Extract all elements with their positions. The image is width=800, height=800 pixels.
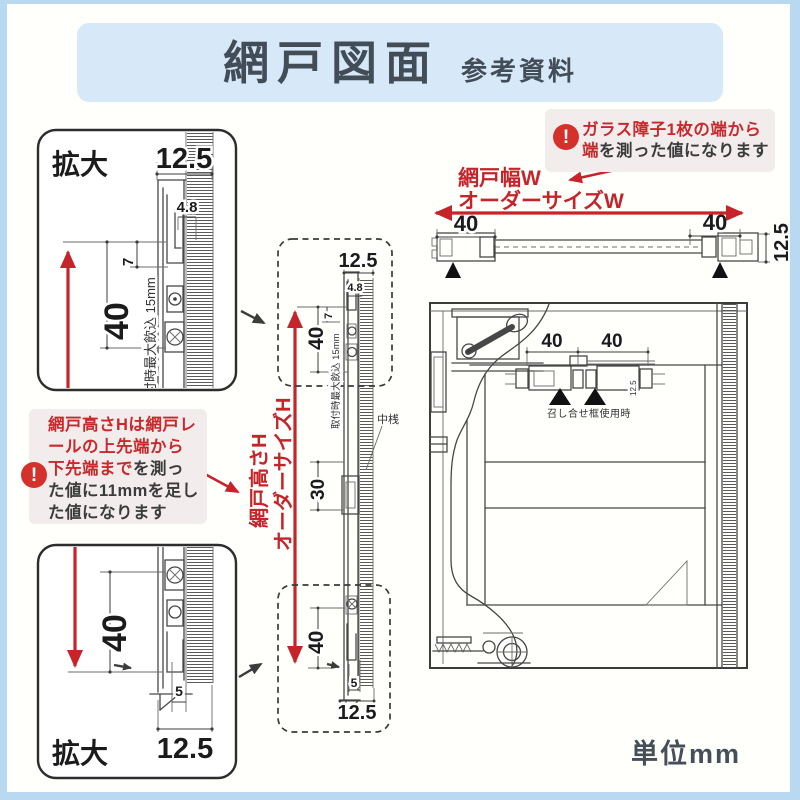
note-line: ールの上先端から — [48, 436, 201, 458]
dim-12-5: 12.5 — [339, 250, 378, 272]
note-text-segment: を測っ — [133, 460, 184, 478]
dim-40: 40 — [601, 331, 622, 352]
warning-glyph: ! — [563, 128, 569, 147]
dim-40: 40 — [96, 614, 134, 652]
dim-12-5-small: 12.5 — [629, 380, 638, 396]
dim-12-5: 12.5 — [156, 143, 212, 175]
screen-door-diagram-page: 取付時最大飲込 15mm 拡大 12.5 4.8 7 40 — [0, 0, 800, 800]
note-line: た値に11mmを足し — [48, 480, 201, 502]
dim-7: 7 — [120, 258, 137, 266]
dim-7: 7 — [323, 313, 335, 319]
warning-glyph: ! — [31, 466, 37, 485]
mesh-band — [360, 278, 373, 688]
meeting-stile-inset: 40 40 12.5 召し合せ框使用時 — [505, 331, 665, 420]
front-view: 40 40 12.5 召し合せ框使用時 — [430, 303, 747, 668]
warning-icon: ! — [21, 462, 47, 488]
dim-5: 5 — [175, 683, 183, 699]
dim-40: 40 — [305, 327, 328, 350]
note-line: ガラス障子1枚の端から — [582, 120, 769, 141]
dim-40: 40 — [305, 631, 328, 654]
roller-marker — [712, 262, 728, 278]
zoom-label-bottom: 拡大 — [52, 738, 108, 769]
detail-box-bottom-left: 拡大 40 5 12.5 — [38, 542, 236, 778]
width-measure-note: ! ガラス障子1枚の端から 端を測った値になります — [545, 109, 775, 172]
note-text-segment: ールの上先端から — [48, 438, 184, 456]
roller-marker — [445, 262, 461, 278]
page-border-left — [0, 0, 7, 800]
page-border-bottom — [0, 792, 800, 800]
top-cross-section: 40 40 12.5 網戸幅W オーダーサイズW — [432, 166, 793, 278]
note-text-segment: た値に11mmを足し — [48, 482, 199, 500]
connector-arrow-top — [241, 311, 264, 323]
page-subtitle: 参考資料 — [461, 57, 577, 86]
note-line: 端を測った値になります — [582, 141, 769, 162]
dim-4-8: 4.8 — [177, 199, 198, 216]
dim-4-8: 4.8 — [347, 282, 362, 294]
note-text-segment: を測った値になります — [599, 142, 769, 160]
order-height-label: オーダーサイズH — [271, 398, 295, 551]
dim-30: 30 — [308, 479, 329, 500]
note-text-segment: た値になります — [48, 504, 167, 522]
dim-40: 40 — [541, 331, 562, 352]
page-border-right — [790, 0, 800, 800]
unit-label: 単位mm — [631, 732, 741, 771]
note-line: た値になります — [48, 502, 201, 524]
page-border-top — [0, 0, 800, 4]
mesh-band — [187, 547, 213, 683]
note-text-segment: 下先端まで — [48, 460, 133, 478]
center-rail-section: 中桟 12.5 4.8 7 40 — [247, 239, 399, 732]
warning-icon: ! — [553, 124, 579, 150]
detail-box-top-left: 取付時最大飲込 15mm 拡大 12.5 4.8 7 40 — [38, 130, 236, 408]
mesh-hatch-triangle — [646, 561, 687, 605]
net-width-label: 網戸幅W — [458, 166, 541, 190]
height-measure-note: ! 網戸高さHは網戸レ ールの上先端から 下先端までを測っ た値に11mmを足し… — [29, 409, 207, 524]
height-note-arrow — [203, 473, 238, 492]
page-title: 網戸図面 — [223, 40, 439, 86]
note-line: 下先端までを測っ — [48, 458, 201, 480]
meeting-stile-label: 召し合せ框使用時 — [547, 407, 631, 420]
title-bar: 網戸図面 参考資料 — [77, 23, 723, 102]
net-height-label: 網戸高さH — [247, 434, 271, 528]
max-engagement-label: 取付時最大飲込 15mm — [330, 333, 342, 429]
dim-12-5: 12.5 — [157, 733, 213, 765]
note-text-segment: ガラス障子1枚の端から — [582, 121, 761, 139]
middle-rail-label: 中桟 — [377, 412, 399, 426]
note-text-segment: 網戸高さHは網戸レ — [48, 416, 196, 434]
mesh-band — [723, 304, 736, 667]
order-width-label: オーダーサイズW — [458, 189, 624, 213]
dim-40: 40 — [454, 211, 478, 236]
zoom-label-top: 拡大 — [52, 149, 108, 180]
note-text-segment: 端 — [582, 142, 599, 160]
dim-40: 40 — [98, 302, 136, 340]
dim-5: 5 — [351, 676, 358, 690]
connector-arrow-bottom — [239, 664, 261, 677]
note-line: 網戸高さHは網戸レ — [48, 414, 201, 436]
dim-12-5: 12.5 — [338, 702, 377, 724]
